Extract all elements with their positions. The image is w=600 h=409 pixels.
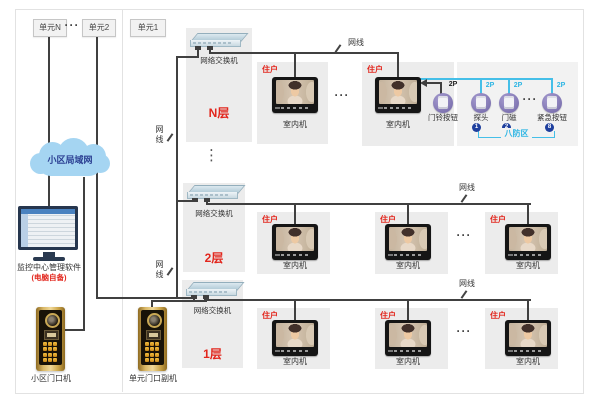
video-screen — [379, 80, 417, 104]
monitor-label: 室内机 — [505, 357, 551, 367]
cable-to-floor1-switch — [96, 297, 196, 299]
monitor-buttons — [514, 254, 543, 256]
brand-mark — [378, 107, 383, 109]
switch-port — [191, 295, 197, 299]
cable-door2-h — [151, 300, 207, 302]
floors-ellipsis: ⋮ — [204, 148, 216, 163]
cable-row2-drop3 — [527, 203, 529, 226]
monitor-buttons — [281, 254, 310, 256]
floor-n-label: N层 — [186, 108, 252, 118]
cable-row2-drop2 — [407, 203, 409, 226]
cable-row1-drop1 — [294, 299, 296, 322]
management-pc — [18, 206, 78, 250]
unit-sub-door-station — [138, 307, 167, 371]
resident-tag: 住户 — [490, 215, 510, 225]
resident-tag: 住户 — [262, 215, 282, 225]
switch-label-2: 网络交换机 — [183, 209, 245, 219]
monitor-label: 室内机 — [272, 357, 318, 367]
management-software-window — [21, 209, 75, 247]
cable-label-trunk-upper: 网线 — [154, 125, 165, 145]
floor-2-label: 2层 — [183, 253, 245, 263]
monitor-buttons — [281, 107, 310, 109]
door-magnet-node — [499, 93, 519, 113]
switch-port — [192, 198, 198, 202]
indoor-monitor — [385, 320, 431, 356]
keypad-icon — [145, 342, 161, 362]
cable-rown-drop1 — [294, 52, 296, 78]
arrow-left-icon — [420, 79, 427, 87]
switch-label-n: 网络交换机 — [186, 56, 252, 66]
video-screen — [276, 323, 314, 347]
brand-mark — [508, 350, 513, 352]
unit-2-node: 单元2 — [82, 19, 116, 37]
brand-mark — [388, 254, 393, 256]
video-screen — [276, 80, 314, 104]
rown-ellipsis: ··· — [330, 90, 354, 100]
indoor-monitor — [505, 320, 551, 356]
indoor-monitor — [385, 224, 431, 260]
monitor-buttons — [384, 107, 413, 109]
cloud-label: 小区局域网 — [30, 153, 110, 166]
video-screen — [389, 227, 427, 251]
community-door-station — [36, 307, 65, 371]
zone-badge-1: 1 — [472, 123, 481, 132]
cable-label-row1: 网线 — [455, 279, 479, 289]
port-label-emergency: 2P — [554, 81, 568, 91]
cable-label-rown: 网线 — [344, 38, 368, 48]
indoor-monitor — [505, 224, 551, 260]
resident-tag: 住户 — [380, 215, 400, 225]
unit-sub-door-label: 单元门口副机 — [120, 374, 186, 384]
brand-mark — [388, 350, 393, 352]
probe-node — [471, 93, 491, 113]
resident-tag: 住户 — [367, 65, 387, 75]
pc-base — [33, 257, 65, 261]
section-divider — [122, 9, 123, 392]
switch-label-1: 网络交换机 — [182, 306, 243, 316]
resident-tag: 住户 — [380, 311, 400, 321]
brand-mark — [275, 350, 280, 352]
door-magnet-label: 门磁 — [487, 113, 531, 123]
keypad-icon — [43, 342, 59, 362]
switch-port — [195, 46, 201, 50]
cable-row1-drop3 — [527, 299, 529, 322]
indoor-monitor — [272, 224, 318, 260]
pc-note: (电脑自备) — [8, 273, 90, 283]
unit-1-label: 单元1 — [138, 23, 158, 32]
cable-row2-drop1 — [294, 203, 296, 226]
video-screen — [389, 323, 427, 347]
probe-icon — [476, 96, 486, 109]
cable-rown-drop2 — [397, 52, 399, 78]
camera-icon — [147, 313, 162, 328]
cable-trunk-vertical — [176, 56, 178, 299]
switch-port — [203, 295, 209, 299]
video-screen — [509, 323, 547, 347]
video-screen — [509, 227, 547, 251]
resident-tag: 住户 — [490, 311, 510, 321]
lan-cloud: 小区局域网 — [30, 136, 110, 182]
brand-mark — [508, 254, 513, 256]
brand-mark — [275, 254, 280, 256]
brand-mark — [275, 107, 280, 109]
monitor-label: 室内机 — [385, 357, 431, 367]
zone-bracket-label: 八防区 — [501, 128, 532, 140]
cable-label-trunk-lower: 网线 — [154, 260, 165, 280]
sensor-drop-probe — [480, 78, 482, 94]
row1-ellipsis: ··· — [452, 326, 476, 336]
diagram-canvas: 单元N ··· 单元2 单元1 网线 网线 网线 网线 网线 — [0, 0, 600, 409]
monitor-label: 室内机 — [272, 261, 318, 271]
port-label-probe: 2P — [483, 81, 497, 91]
emergency-icon — [547, 96, 557, 109]
unit-n-label: 单元N — [39, 23, 61, 32]
monitor-buttons — [514, 350, 543, 352]
community-door-label: 小区门口机 — [18, 374, 84, 384]
camera-icon — [45, 313, 60, 328]
port-label-doorbell: 2P — [445, 80, 461, 90]
doorbell-button-node — [433, 93, 453, 113]
cable-rown-h — [209, 52, 399, 54]
monitor-label: 室内机 — [385, 261, 431, 271]
port-label-magnet: 2P — [511, 81, 525, 91]
sensor-drop-emergency — [551, 78, 553, 94]
resident-tag: 住户 — [262, 65, 282, 75]
cable-row1-h — [205, 299, 531, 301]
door-magnet-icon — [504, 96, 514, 109]
monitor-buttons — [394, 254, 423, 256]
switch-port — [204, 198, 210, 202]
cable-row2-h — [206, 203, 531, 205]
display-icon — [146, 330, 161, 340]
emergency-button-node — [542, 93, 562, 113]
switch-port — [207, 46, 213, 50]
emergency-label: 紧急按钮 — [530, 113, 574, 123]
pc-label: 监控中心管理软件 — [8, 263, 90, 273]
units-ellipsis: ··· — [63, 20, 81, 30]
network-switch-n — [187, 33, 245, 50]
unit-1-node: 单元1 — [130, 19, 166, 37]
monitor-label: 室内机 — [505, 261, 551, 271]
monitor-label: 室内机 — [272, 120, 318, 130]
cable-door1-riser — [83, 177, 85, 331]
network-switch-1 — [183, 282, 241, 299]
monitor-buttons — [394, 350, 423, 352]
zone-badge-8: 8 — [545, 123, 554, 132]
cable-door1-h — [62, 329, 85, 331]
doorbell-icon — [438, 96, 448, 109]
network-switch-2 — [184, 185, 242, 202]
indoor-monitor — [375, 77, 421, 113]
indoor-monitor — [272, 77, 318, 113]
cable-row1-drop2 — [407, 299, 409, 322]
resident-tag: 住户 — [262, 311, 282, 321]
display-icon — [44, 330, 59, 340]
monitor-label: 室内机 — [375, 120, 421, 130]
unit-2-label: 单元2 — [89, 23, 109, 32]
monitor-buttons — [281, 350, 310, 352]
cable-label-row2: 网线 — [455, 183, 479, 193]
floor-1-label: 1层 — [182, 349, 243, 359]
video-screen — [276, 227, 314, 251]
sensor-drop-magnet — [508, 78, 510, 94]
unit-n-node: 单元N — [33, 19, 67, 37]
indoor-monitor — [272, 320, 318, 356]
row2-ellipsis: ··· — [452, 230, 476, 240]
sensors-ellipsis: ··· — [519, 94, 541, 104]
